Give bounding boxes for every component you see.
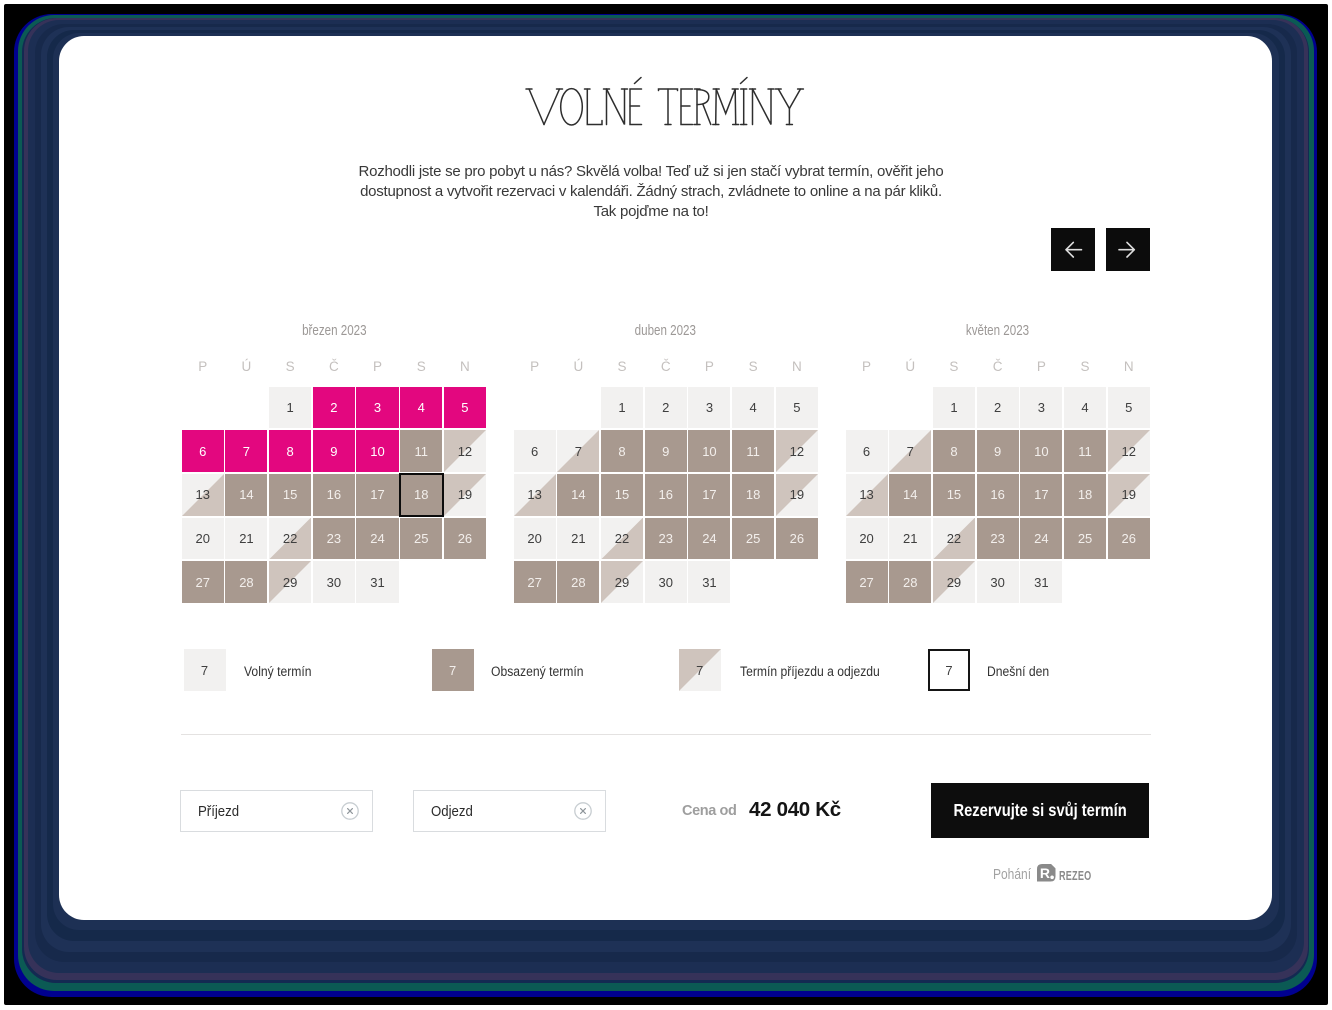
- svg-text:R: R: [1040, 865, 1050, 881]
